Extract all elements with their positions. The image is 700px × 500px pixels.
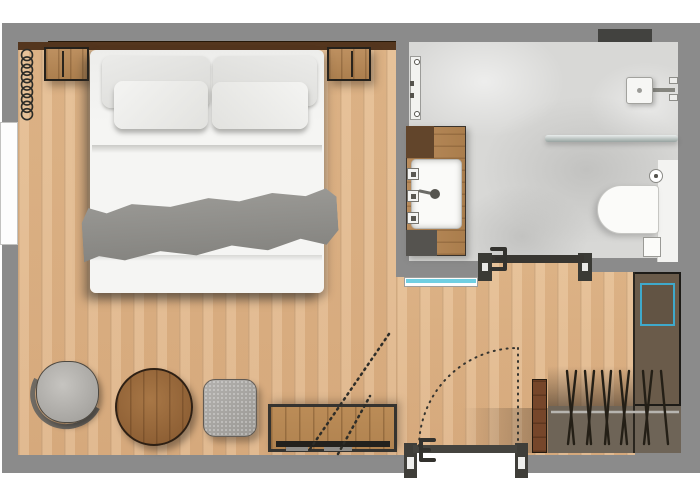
towel-rail xyxy=(410,56,421,120)
rail-bracket xyxy=(410,93,414,98)
entry-door-opening xyxy=(417,453,515,473)
nightstand-right xyxy=(327,47,371,81)
shower-bracket xyxy=(669,94,678,101)
media-device xyxy=(324,447,352,451)
jamb-notch xyxy=(482,263,488,271)
rail-bracket xyxy=(410,81,414,86)
bathroom-bottom-wall-left xyxy=(396,261,480,277)
toiletry-item xyxy=(407,190,419,202)
waste-bin xyxy=(643,237,661,257)
bathroom-wall-niche-vent xyxy=(598,29,652,42)
vanity-shelf xyxy=(406,126,434,158)
bathroom-door-leaf xyxy=(492,255,584,263)
under-sink-cabinet xyxy=(406,230,437,256)
closet-floor xyxy=(548,406,681,453)
front-pillow-left xyxy=(114,81,208,129)
toiletry-item xyxy=(407,212,419,224)
safe xyxy=(640,283,675,326)
shower-head xyxy=(626,77,653,104)
entry-door-leaf xyxy=(413,445,517,453)
shower-bracket xyxy=(669,77,678,84)
jamb-notch xyxy=(582,263,588,271)
toilet-paper-holder xyxy=(649,169,663,183)
tv-console xyxy=(268,404,397,452)
armchair-cushion xyxy=(36,361,99,423)
ottoman xyxy=(203,379,257,437)
floor-plan xyxy=(0,0,700,500)
closet-divider-panel xyxy=(633,272,635,453)
media-device xyxy=(286,447,308,451)
nightstand-divider xyxy=(351,51,353,77)
exterior-window xyxy=(0,122,18,245)
rail-end xyxy=(414,111,420,117)
jamb-notch xyxy=(407,457,414,469)
shower-arm xyxy=(652,88,675,92)
jamb-notch xyxy=(518,457,525,469)
shower-glass-screen xyxy=(545,135,678,142)
nightstand-left xyxy=(44,47,89,81)
toilet-bowl xyxy=(597,185,659,234)
bathroom-door-jamb-left xyxy=(478,253,492,281)
tub-armchair xyxy=(29,356,107,432)
duvet-fold xyxy=(92,145,322,153)
interior-glass-pane xyxy=(406,279,476,283)
front-pillow-right xyxy=(212,82,308,129)
tall-cabinet xyxy=(532,379,547,453)
rail-end xyxy=(414,59,420,65)
round-side-table xyxy=(115,368,193,446)
toiletry-item xyxy=(407,168,419,180)
nightstand-divider xyxy=(62,51,64,77)
